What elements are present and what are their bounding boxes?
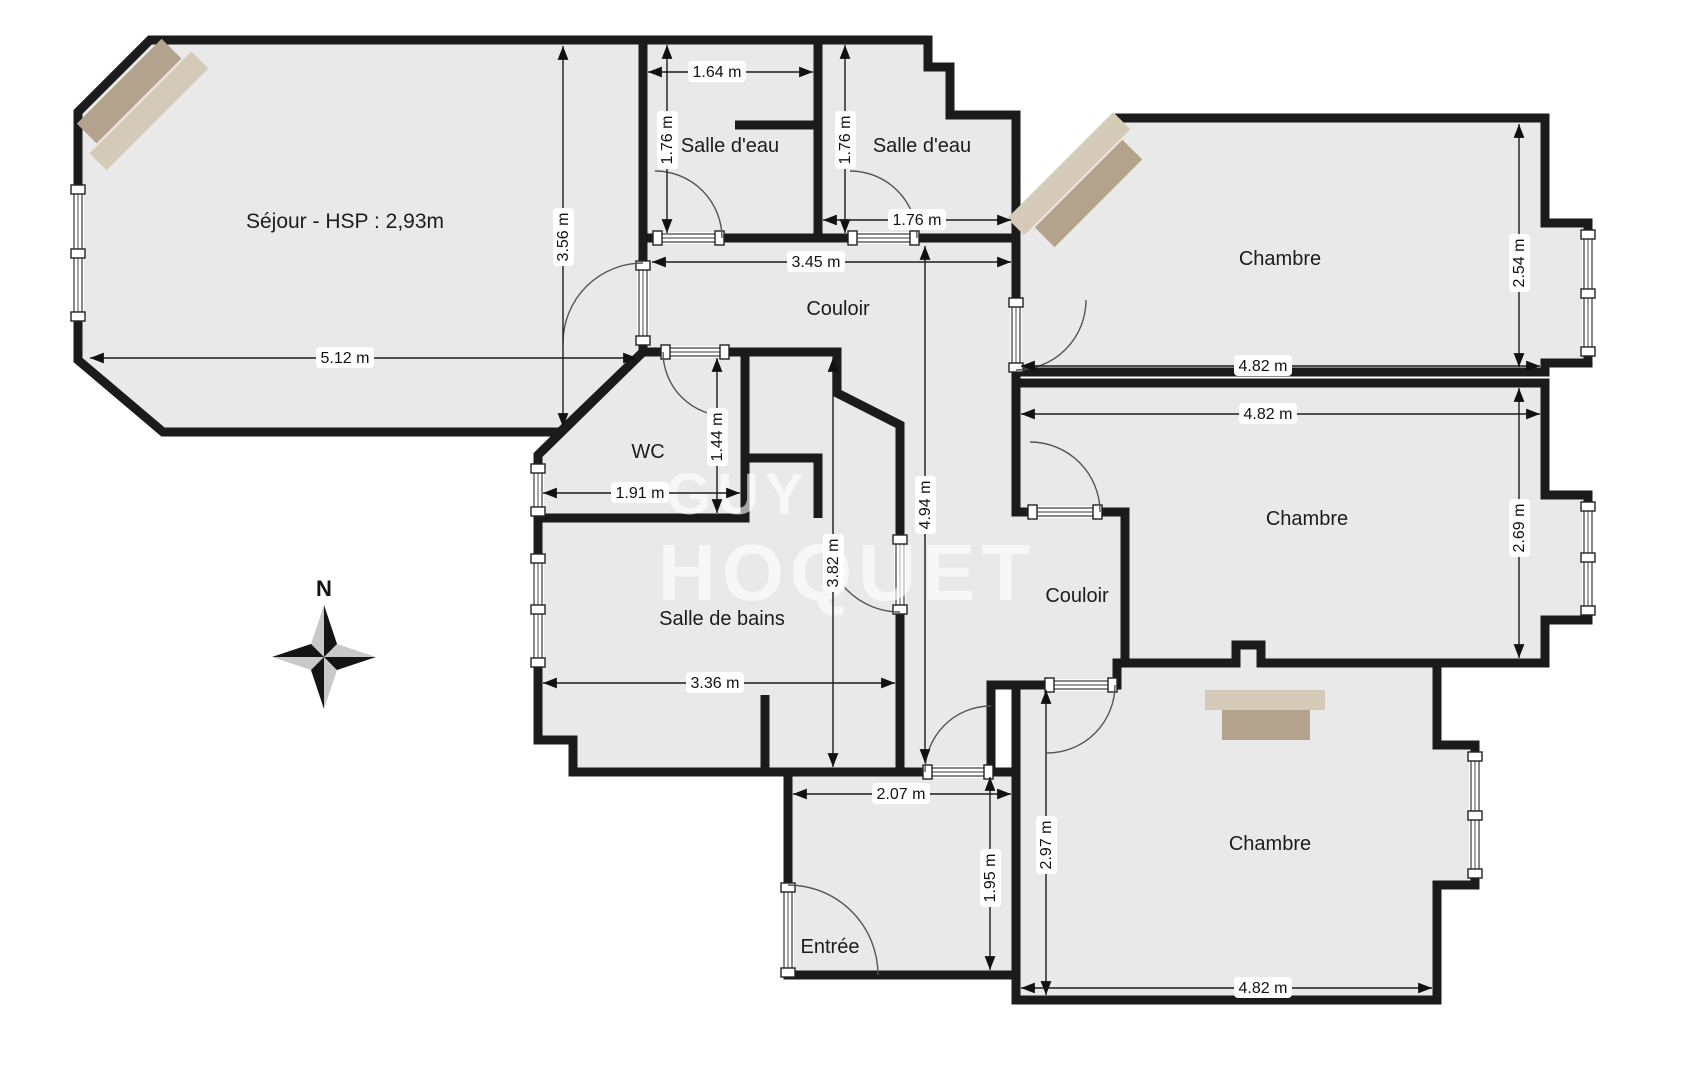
svg-text:4.82 m: 4.82 m xyxy=(1239,980,1288,997)
svg-text:1.91 m: 1.91 m xyxy=(616,485,665,502)
label-chambre-milieu: Chambre xyxy=(1266,508,1348,530)
label-chambre-bas: Chambre xyxy=(1229,833,1311,855)
label-salle-de-bains: Salle de bains xyxy=(659,608,785,630)
label-chambre-haut: Chambre xyxy=(1239,248,1321,270)
svg-text:1.76 m: 1.76 m xyxy=(893,212,942,229)
svg-text:2.54 m: 2.54 m xyxy=(1511,239,1528,288)
compass-rose: N xyxy=(272,576,376,709)
svg-text:4.82 m: 4.82 m xyxy=(1244,406,1293,423)
label-sejour: Séjour - HSP : 2,93m xyxy=(246,210,444,233)
label-couloir-haut: Couloir xyxy=(806,298,870,320)
label-couloir-bas: Couloir xyxy=(1045,585,1109,607)
label-salle-deau-droite: Salle d'eau xyxy=(873,135,971,157)
svg-text:3.36 m: 3.36 m xyxy=(691,675,740,692)
svg-text:3.82 m: 3.82 m xyxy=(825,539,842,588)
svg-text:2.07 m: 2.07 m xyxy=(877,786,926,803)
label-salle-deau-gauche: Salle d'eau xyxy=(681,135,779,157)
fireplace-chambre-bas xyxy=(1205,690,1325,740)
svg-text:4.94 m: 4.94 m xyxy=(917,481,934,530)
label-wc: WC xyxy=(631,441,664,463)
label-entree: Entrée xyxy=(801,936,860,958)
compass-north-label: N xyxy=(316,576,332,601)
window-chambre-haut xyxy=(1581,230,1595,356)
svg-text:3.45 m: 3.45 m xyxy=(792,254,841,271)
svg-text:1.76 m: 1.76 m xyxy=(837,116,854,165)
svg-text:5.12 m: 5.12 m xyxy=(321,350,370,367)
window-chambre-bas xyxy=(1468,752,1482,878)
watermark-line2: HOQUET xyxy=(658,528,1036,617)
window-chambre-milieu xyxy=(1581,502,1595,615)
floorplan-page: GUY HOQUET 1.64 m 1.76 m 1.76 m 1.76 m xyxy=(0,0,1684,1080)
svg-text:1.76 m: 1.76 m xyxy=(659,116,676,165)
svg-text:1.64 m: 1.64 m xyxy=(693,64,742,81)
window-wc xyxy=(531,464,545,516)
svg-text:1.44 m: 1.44 m xyxy=(709,413,726,462)
svg-text:2.97 m: 2.97 m xyxy=(1038,821,1055,870)
window-sejour xyxy=(71,185,85,321)
watermark-line1: GUY xyxy=(666,462,810,527)
floorplan-drawing: GUY HOQUET 1.64 m 1.76 m 1.76 m 1.76 m xyxy=(0,0,1684,1080)
svg-text:4.82 m: 4.82 m xyxy=(1239,358,1288,375)
svg-text:3.56 m: 3.56 m xyxy=(555,213,572,262)
svg-text:1.95 m: 1.95 m xyxy=(982,854,999,903)
svg-text:2.69 m: 2.69 m xyxy=(1511,504,1528,553)
window-salle-de-bains xyxy=(531,554,545,667)
